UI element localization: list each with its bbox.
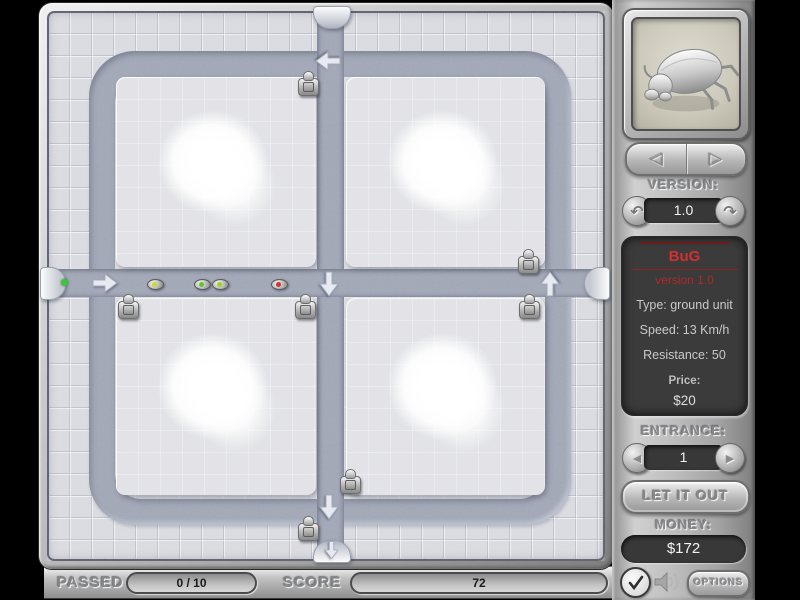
price-label: Price: [669,375,701,387]
direction-arrow-down [319,494,339,520]
entrance-selector: ◀ 1 ▶ [622,443,745,473]
unit-speed: Speed: 13 Km/h [640,323,730,337]
turret-sprite[interactable] [517,248,539,274]
snow-mound [368,92,523,244]
passed-label: PASSED [57,574,124,591]
status-bar: PASSED 0 / 10 SCORE 72 [44,566,612,599]
direction-arrow-up [540,271,560,297]
passed-value: 0 / 10 [126,572,257,594]
info-fineprint-rule [640,242,730,244]
check-icon [626,573,645,592]
money-value: $172 [621,535,746,563]
bug-sprite [212,279,229,290]
beetle-image [633,19,739,129]
sound-toggle-button[interactable] [654,571,682,593]
turret-sprite[interactable] [297,515,319,541]
score-label: SCORE [283,574,341,591]
entrance-next-button[interactable]: ▶ [715,443,745,473]
unit-name: BuG [669,248,701,265]
turret-sprite[interactable] [339,468,361,494]
options-button[interactable]: OPTIONS [687,570,750,597]
unit-type: Type: ground unit [636,298,733,312]
direction-arrow-down [319,271,339,297]
let-it-out-button[interactable]: LET IT OUT [621,480,750,514]
direction-arrow-down [325,541,339,560]
tile-block-top-right[interactable] [346,77,545,267]
version-selector: ↶ 1.0 ↷ [622,196,745,226]
game-window: PASSED 0 / 10 SCORE 72 [0,0,800,600]
unit-version: version 1.0 [655,273,714,287]
entrance-label: ENTRANCE: [612,423,755,438]
prev-unit-button[interactable]: ◁ [627,144,686,174]
control-panel: ◁ ▷ VERSION: ↶ 1.0 ↷ BuG version 1.0 Typ… [612,0,755,600]
score-value: 72 [350,572,608,594]
snow-mound [138,314,294,472]
turret-sprite[interactable] [294,293,316,319]
version-next-button[interactable]: ↷ [715,196,745,226]
unit-preview-screen [631,17,741,131]
info-divider [631,269,739,270]
tile-block-bottom-right[interactable] [346,298,545,495]
bug-sprite [271,279,288,290]
direction-arrow-right [92,273,118,293]
game-board[interactable] [47,11,605,561]
confirm-toggle-button[interactable] [620,567,651,598]
entrance-cap-right [584,267,610,300]
snow-mound [368,314,523,472]
bug-sprite [147,279,164,290]
version-value: 1.0 [644,198,723,223]
snow-mound [138,92,294,244]
unit-info-panel: BuG version 1.0 Type: ground unit Speed:… [621,236,748,416]
price-value: $20 [673,393,696,408]
tile-block-top-left[interactable] [116,77,316,267]
direction-arrow-left [315,51,341,71]
version-label: VERSION: [612,177,755,192]
board-frame [38,2,614,570]
next-unit-button[interactable]: ▷ [686,144,746,174]
money-label: MONEY: [612,517,755,532]
bug-sprite [194,279,211,290]
tile-block-bottom-left[interactable] [116,298,316,495]
turret-sprite[interactable] [518,293,540,319]
unit-preview-frame [622,8,750,140]
unit-resistance: Resistance: 50 [643,348,726,362]
turret-sprite[interactable] [297,70,319,96]
unit-nav: ◁ ▷ [625,142,747,176]
spawn-indicator-dot [61,279,68,286]
speaker-icon [654,571,682,593]
turret-sprite[interactable] [117,293,139,319]
entrance-value: 1 [644,445,723,470]
